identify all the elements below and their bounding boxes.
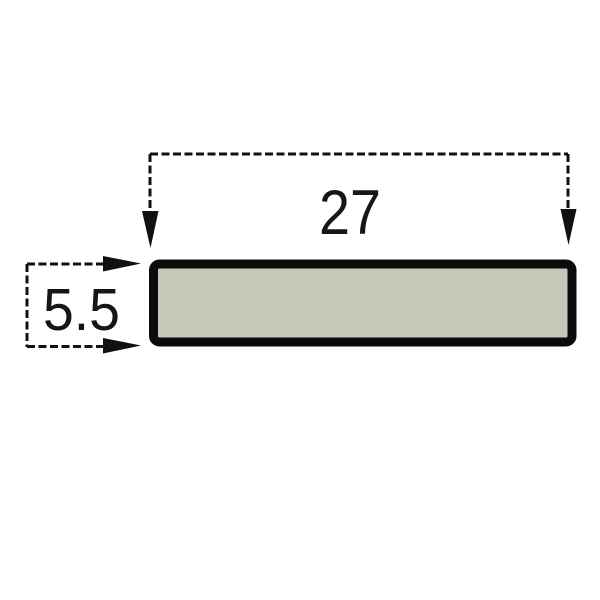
svg-text:27: 27 [319,178,381,248]
svg-text:5.5: 5.5 [43,277,120,343]
